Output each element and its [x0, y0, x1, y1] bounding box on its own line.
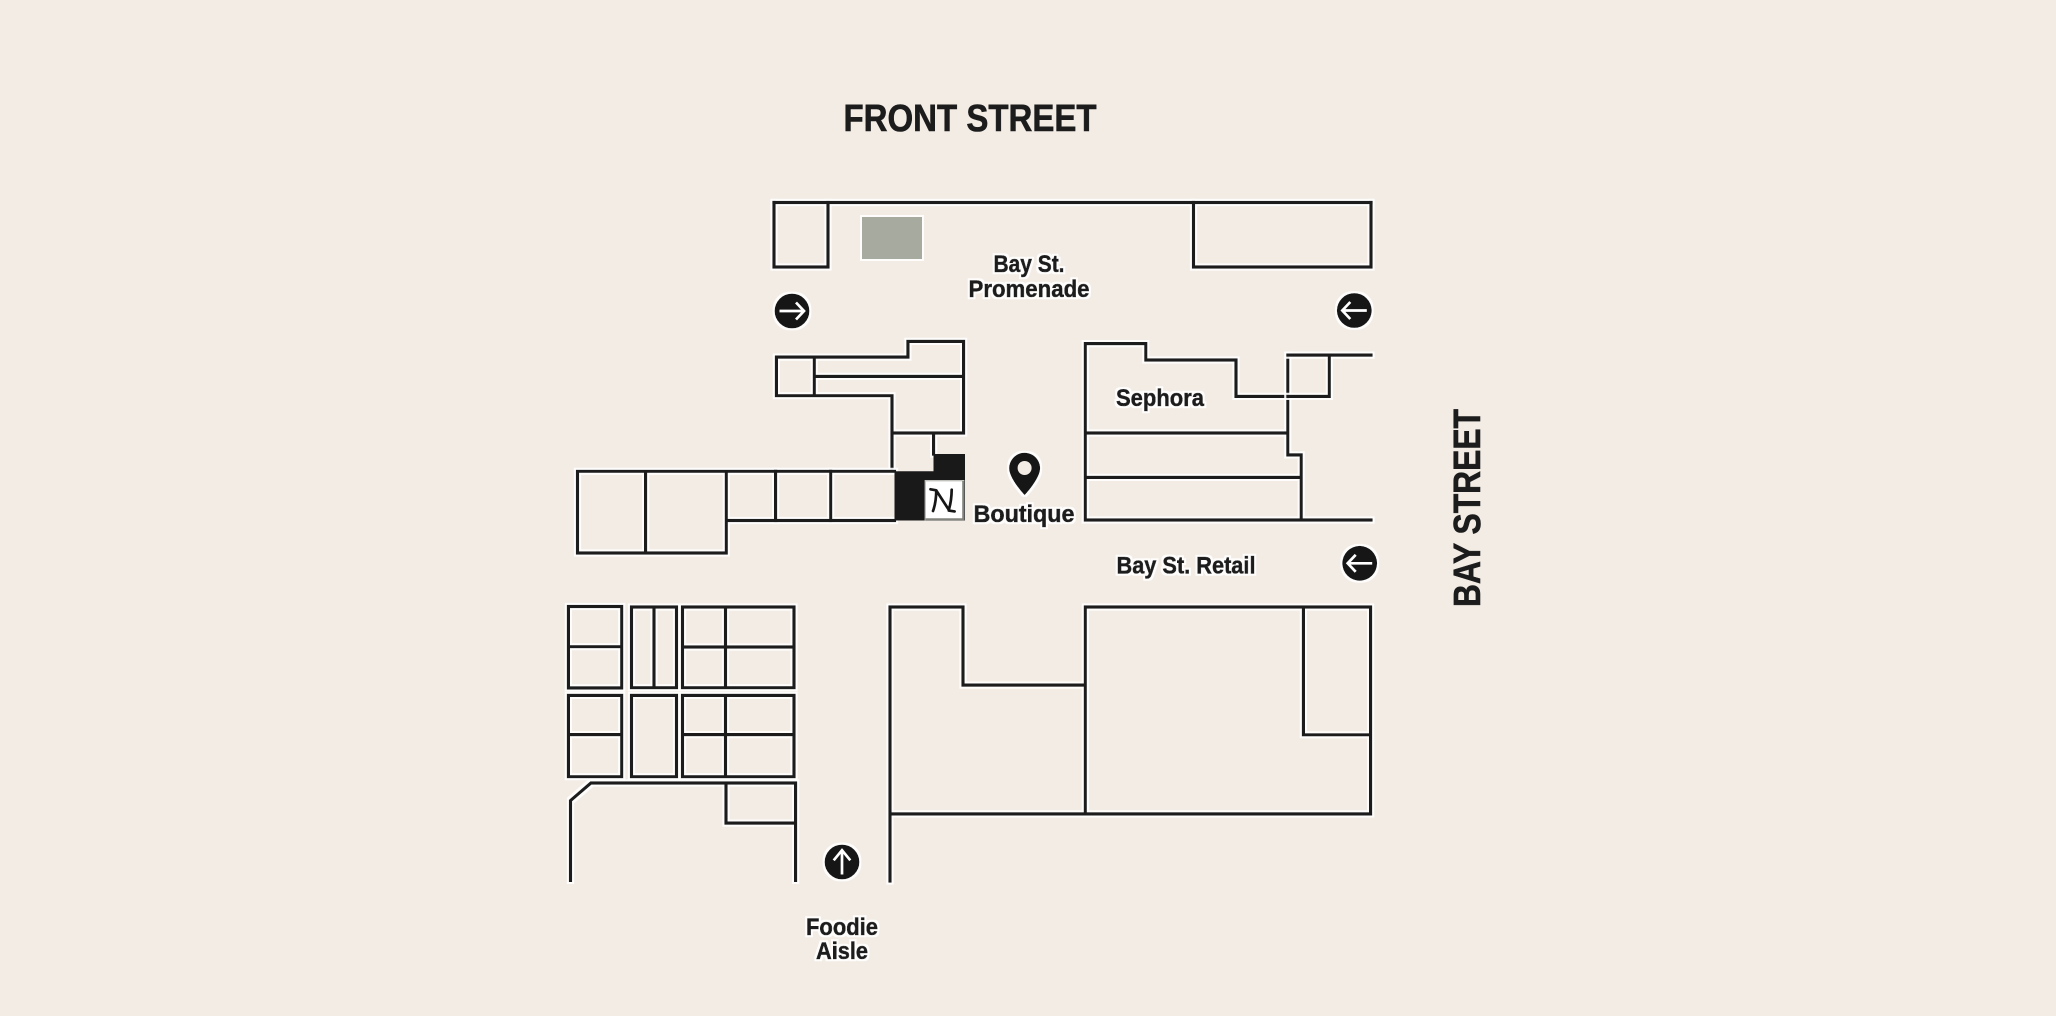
svg-text:FRONT STREET: FRONT STREET: [844, 98, 1097, 140]
svg-text:Boutique: Boutique: [974, 501, 1075, 528]
svg-text:Aisle: Aisle: [816, 938, 868, 965]
svg-text:Promenade: Promenade: [969, 276, 1090, 303]
svg-text:BAY STREET: BAY STREET: [1447, 409, 1489, 607]
svg-text:Bay St.: Bay St.: [994, 251, 1065, 278]
svg-text:Sephora: Sephora: [1116, 385, 1204, 412]
svg-text:Bay St. Retail: Bay St. Retail: [1117, 553, 1256, 580]
svg-text:Foodie: Foodie: [806, 914, 878, 941]
